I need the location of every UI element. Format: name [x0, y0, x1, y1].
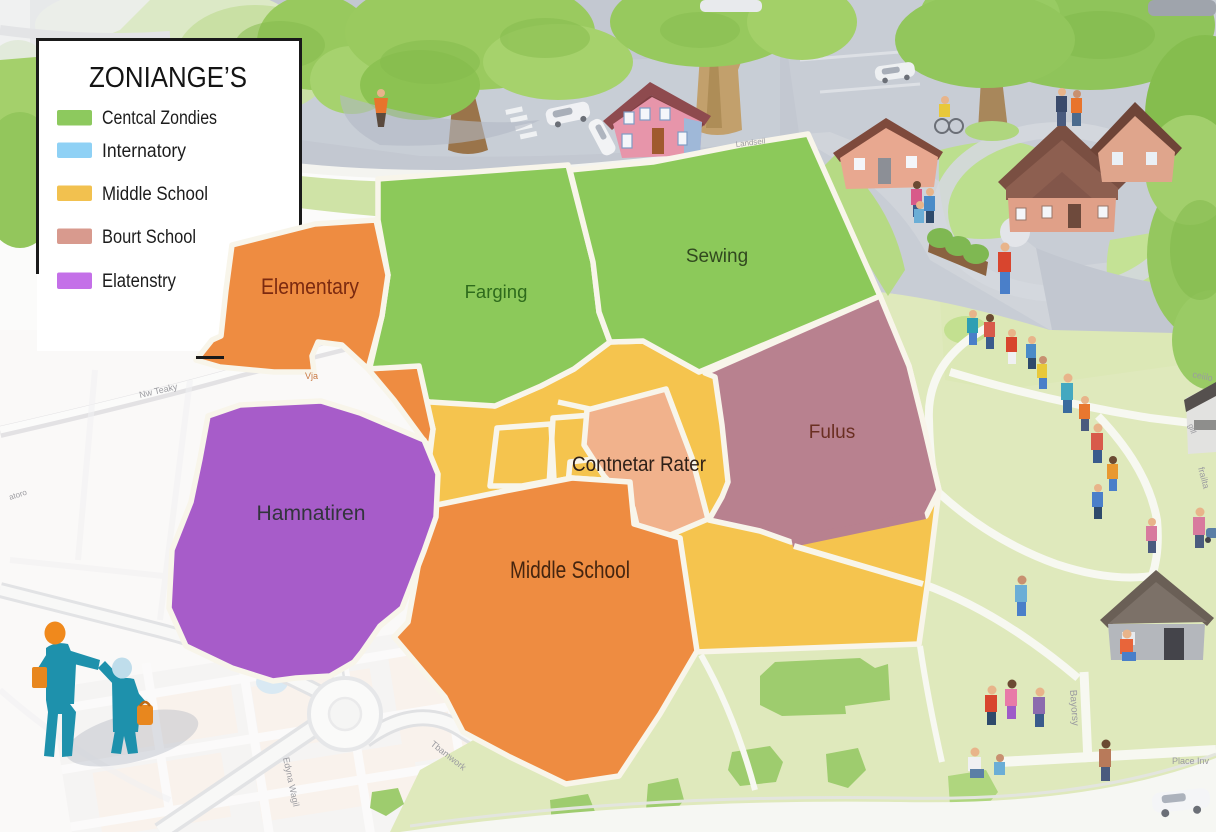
svg-text:Contnetar Rater: Contnetar Rater — [572, 453, 706, 476]
svg-text:Elatenstry: Elatenstry — [102, 271, 176, 292]
svg-text:Internatory: Internatory — [102, 141, 186, 162]
svg-text:Farging: Farging — [465, 281, 528, 302]
svg-text:Middle School: Middle School — [102, 184, 208, 205]
svg-text:Centcal Zondies: Centcal Zondies — [102, 108, 217, 129]
svg-text:Sewing: Sewing — [686, 246, 748, 267]
svg-text:Bourt School: Bourt School — [102, 227, 196, 248]
svg-text:Vja: Vja — [305, 371, 318, 381]
svg-text:ZONIANGE’S: ZONIANGE’S — [89, 62, 247, 94]
svg-text:Place Inv: Place Inv — [1172, 756, 1210, 766]
svg-text:Elementary: Elementary — [261, 274, 359, 299]
svg-text:Fulus: Fulus — [809, 422, 855, 443]
svg-text:Middle School: Middle School — [510, 557, 630, 584]
svg-text:Hamnatiren: Hamnatiren — [257, 502, 366, 525]
